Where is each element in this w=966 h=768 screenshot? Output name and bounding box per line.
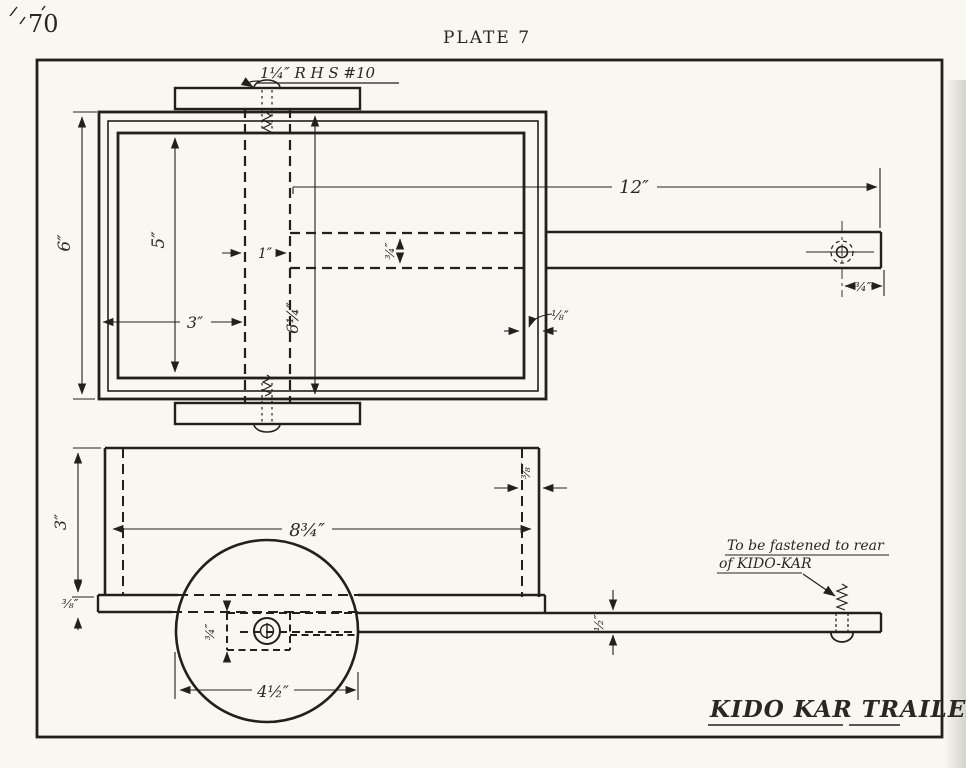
dim-label: 1″ [258,246,273,262]
dim-label: 5″ [149,231,169,249]
note-line-2: of KIDO-KAR [719,556,812,572]
scanned-plate-page: 70 PLATE 7 [0,0,966,768]
dim-label: ¾″ [202,623,217,640]
dim-label: ⅛″ [551,309,569,324]
scan-edge-shadow [944,80,966,768]
dim-label: ¾″ [855,279,872,294]
dim-label: 3″ [51,514,70,530]
dim-label: 4½″ [256,682,289,701]
dim-label: 8¾″ [289,520,325,541]
dim-label: 12″ [619,177,649,198]
dim-label: ⅜″ [518,462,533,479]
hardware-label: 1¼″ R H S #10 [260,64,376,82]
note-line-1: To be fastened to rear [727,538,885,554]
dim-label: 6″ [55,234,75,252]
trailer-drawing: 70 PLATE 7 [0,0,966,768]
plate-title: PLATE 7 [443,28,531,48]
paper-background [0,0,966,768]
page-number: 70 [28,10,59,38]
dim-label: 3″ [187,313,203,332]
title-block: KIDO KAR TRAILER [708,696,966,725]
drawing-title: KIDO KAR TRAILER [709,696,966,723]
dim-label: ⅜″ [62,596,79,611]
dim-label: ¾″ [382,242,397,259]
dim-label: ½″ [591,614,606,631]
dim-label: 6¼″ [283,302,302,334]
